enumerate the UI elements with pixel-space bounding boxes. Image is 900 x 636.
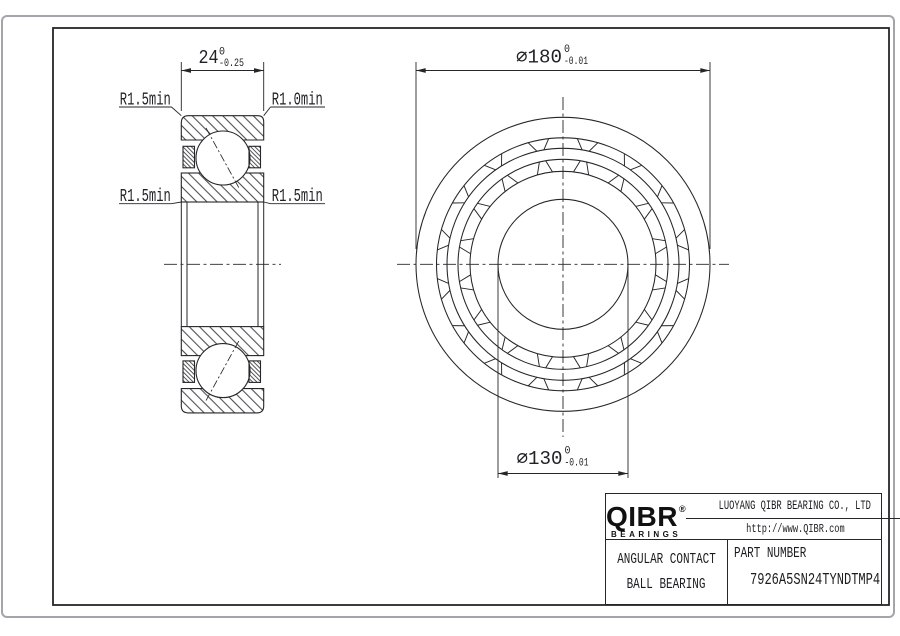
brand-logo: QIBR® BEARINGS <box>606 494 686 539</box>
dim-arrow <box>700 68 710 73</box>
outer-dia-value: ⌀180 <box>516 47 562 69</box>
part-number-label: PART NUMBER <box>734 545 876 562</box>
cage-block <box>249 146 261 168</box>
logo-subtext: BEARINGS <box>611 530 681 539</box>
bore-dia-tol-upper: 0 <box>565 446 571 458</box>
width-dim-tol-upper: 0 <box>219 47 225 59</box>
website-url-text: http://www.QIBR.com <box>746 522 845 536</box>
ball-bottom <box>196 344 250 398</box>
bearing-type-line1: ANGULAR CONTACT <box>617 551 716 568</box>
part-number-value: 7926A5SN24TYNDTMP4 <box>750 570 880 589</box>
bore-dia-tol-lower: -0.01 <box>565 458 589 470</box>
website-url: http://www.QIBR.com <box>686 518 900 539</box>
dim-arrow <box>618 471 628 476</box>
title-block: QIBR® BEARINGS LUOYANG QIBR BEARING CO.,… <box>605 493 882 605</box>
logo-wordmark: QIBR® <box>606 495 686 531</box>
bore-dia-value: ⌀130 <box>517 448 563 470</box>
company-cell: LUOYANG QIBR BEARING CO., LTD http://www… <box>686 494 900 539</box>
width-dim-tol-lower: -0.25 <box>219 58 244 70</box>
front-view <box>397 97 729 437</box>
registered-trademark-icon: ® <box>679 504 686 514</box>
fillet-label-top-left: R1.5min <box>120 90 171 110</box>
cage-block <box>183 146 195 168</box>
fillet-label-top-right: R1.0min <box>272 90 323 110</box>
dim-arrow <box>254 68 264 73</box>
cage-block <box>249 361 261 383</box>
company-name: LUOYANG QIBR BEARING CO., LTD <box>686 494 900 518</box>
outer-dia-tol-upper: 0 <box>564 44 570 56</box>
company-name-text: LUOYANG QIBR BEARING CO., LTD <box>719 499 871 513</box>
bearing-type-line2: BALL BEARING <box>627 576 706 593</box>
outer-dia-tol-lower: -0.01 <box>564 56 588 68</box>
bearing-type: ANGULAR CONTACT BALL BEARING <box>606 540 728 604</box>
logo-text: QIBR <box>606 501 678 532</box>
cage-block <box>183 361 195 383</box>
dim-arrow <box>181 68 191 73</box>
part-number-cell: PART NUMBER 7926A5SN24TYNDTMP4 <box>728 540 900 604</box>
ball-top <box>196 131 250 185</box>
section-view <box>164 116 281 413</box>
width-dim-value: 24 <box>199 47 219 69</box>
dim-arrow <box>416 68 426 73</box>
fillet-label-bottom-right: R1.5min <box>272 187 323 207</box>
title-block-header-row: QIBR® BEARINGS LUOYANG QIBR BEARING CO.,… <box>606 494 881 540</box>
dim-arrow <box>498 471 508 476</box>
title-block-body-row: ANGULAR CONTACT BALL BEARING PART NUMBER… <box>606 540 881 604</box>
fillet-label-bottom-left: R1.5min <box>120 187 171 207</box>
